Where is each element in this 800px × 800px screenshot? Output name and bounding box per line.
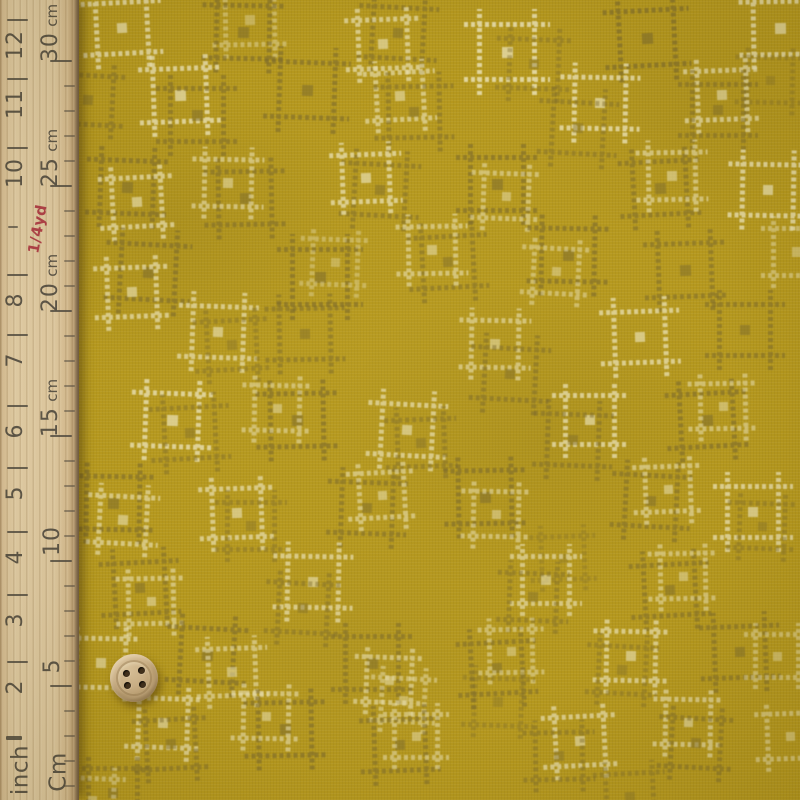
cm-minor-tick [64,410,75,412]
inch-number-6: 6 [5,424,27,439]
motif-stitch-line [768,290,773,370]
cm-number-20: 20 cm [40,254,62,312]
inch-tick-3 [7,594,28,596]
cm-tick-10 [50,560,72,562]
motif-center-square [679,264,690,275]
motif-center-square [528,592,538,602]
cm-minor-tick [64,760,75,762]
fabric-motif-dark [703,288,787,372]
motif-center-square [237,26,248,37]
inch-tick-8 [7,274,28,276]
motif-center-square [641,32,653,44]
motif-center-square [554,751,564,761]
cm-minor-tick [64,160,75,162]
fabric-motif-cream [91,251,174,334]
inch-tick-11 [7,78,28,80]
inch-number-10: 10 [5,158,27,188]
motif-stitch-line [221,74,226,156]
inch-tick-4 [7,531,28,533]
inch-tick-12 [7,19,28,21]
motif-center-square [551,266,560,275]
motif-stitch-line [761,226,800,231]
quarter-yard-tick [8,226,18,228]
motif-center-square [378,39,388,49]
fabric-motif-dark [534,84,622,172]
motif-center-square [785,731,794,740]
cm-minor-tick [64,85,75,87]
cm-number-30: 30 cm [40,4,62,62]
motif-center-square [506,646,515,655]
cm-minor-tick [64,785,75,787]
cm-minor-tick [64,360,75,362]
motif-center-square [272,403,281,412]
cm-minor-tick [64,210,75,212]
motif-center-square [227,667,237,677]
motif-stitch-line [756,755,800,762]
motif-center-square [427,245,437,255]
motif-center-square [246,521,256,531]
fabric-motif-cream [645,538,720,613]
button-hole [123,670,130,677]
button-hole [139,681,146,688]
motif-stitch-line [649,760,658,800]
fabric-motif-cream [393,211,470,288]
inch-tick-6 [7,405,28,407]
motif-center-square [765,75,774,84]
fabric-motif-cream [189,144,266,221]
motif-center-square [361,173,371,183]
motif-center-square [568,435,578,445]
motif-stitch-line [92,0,101,69]
motif-center-square [146,596,155,605]
fabric-motif-cream [517,232,595,310]
motif-center-square [298,603,309,614]
motif-center-square [792,247,800,257]
cm-number-10: 10 [42,526,64,556]
motif-stitch-line [741,70,746,150]
motif-center-square [493,697,503,707]
motif-stitch-line [343,622,348,704]
fabric-motif-dark [260,43,353,136]
cm-minor-tick [64,710,75,712]
inch-number-12: 12 [5,30,27,60]
motif-center-square [625,792,636,800]
cm-minor-tick [64,260,75,262]
motif-stitch-line [754,710,800,717]
inch-number-4: 4 [5,550,27,565]
fabric-motif-cream [759,214,800,290]
motif-center-square [416,438,426,448]
fabric-motif-cream [327,139,406,218]
button-hole [124,682,131,689]
motif-stitch-line [602,762,611,800]
cm-number-25: 25 cm [40,129,62,187]
button-rim [116,660,152,696]
inch-number-3: 3 [5,613,27,628]
motif-center-square [166,739,177,750]
motif-center-square [678,571,687,580]
cm-minor-tick [64,235,75,237]
cm-minor-tick [64,510,75,512]
fabric-motif-cream [458,476,533,551]
motif-center-square [763,185,773,195]
motif-center-square [691,738,702,749]
motif-center-square [223,178,233,188]
wooden-ruler: 1211101/4yd8765432inch30 cm25 cm20 cm15 … [0,0,79,800]
inch-number-2: 2 [5,680,27,695]
motif-stitch-line [771,216,776,288]
motif-center-square [718,401,727,410]
motif-center-square [412,732,421,741]
motif-center-square [83,95,94,106]
motif-center-square [261,711,270,720]
fabric-motif-dark [146,389,234,477]
motif-center-square [377,490,386,499]
cm-minor-tick [64,535,75,537]
motif-center-square [757,521,766,530]
motif-center-square [87,795,96,800]
fabric-motif-dark [520,717,597,794]
fabric-motif-dark [530,397,617,484]
cm-minor-tick [64,610,75,612]
fabric-motif-cream [381,701,451,771]
cm-minor-tick [64,735,75,737]
motif-center-square [491,509,500,518]
motif-center-square [127,287,137,297]
motif-center-square [330,257,339,266]
fabric-motif-cream [343,456,421,534]
motif-center-square [132,197,143,208]
motif-stitch-line [225,490,230,562]
fabric-motif-dark [582,630,662,710]
cm-minor-tick [64,110,75,112]
fabric-motif-cream [633,137,710,214]
motif-center-square [713,105,723,115]
motif-stitch-line [392,703,397,769]
motif-center-square [740,325,750,335]
inch-number-8: 8 [5,293,27,308]
inch-number-11: 11 [5,89,27,119]
cm-minor-tick [64,460,75,462]
motif-center-square [773,652,782,661]
motif-stitch-line [435,703,440,769]
motif-center-square [300,329,310,339]
fabric-motif-cream [685,368,760,443]
motif-stitch-line [796,623,800,689]
fabric-motif-cream [742,621,800,691]
motif-center-square [501,191,510,200]
wooden-button [110,654,158,702]
cm-minor-tick [64,135,75,137]
cm-minor-tick [64,485,75,487]
cm-minor-tick [64,285,75,287]
fabric-motif-dark [724,488,800,565]
motif-stitch-line [168,74,173,156]
cm-minor-tick [64,585,75,587]
motif-stitch-line [728,161,800,167]
motif-center-square [635,332,645,342]
quarter-yard-label: 1/4yd [26,203,49,254]
fabric-motif-cream [752,698,800,775]
motif-center-square [667,171,677,181]
motif-stitch-line [739,0,800,5]
inch-tick-10 [7,147,28,149]
fabric-motif-cream [228,678,303,753]
motif-center-square [227,340,238,351]
inch-tick-7 [7,334,28,336]
cm-minor-tick [64,635,75,637]
motif-center-square [663,484,672,493]
fabric-motif-cream [597,294,684,381]
motif-center-square [774,22,785,33]
inch-tick-5 [7,467,28,469]
motif-center-square [96,658,106,668]
motif-center-square [185,428,196,439]
motif-center-square [617,665,628,676]
motif-stitch-line [110,768,117,800]
cm-minor-tick [64,385,75,387]
inch-tick-2 [7,661,28,663]
fabric-product-photo: 1211101/4yd8765432inch30 cm25 cm20 cm15 … [0,0,800,800]
motif-stitch-line [761,273,800,278]
motif-center-square [529,59,539,69]
motif-stitch-line [135,755,140,800]
cm-number-5: 5 [42,659,64,674]
cm-tick-5 [50,685,72,687]
motif-center-square [573,123,584,134]
motif-center-square [118,515,129,526]
fabric-motif-cream [239,370,314,445]
cm-minor-tick [64,660,75,662]
motif-center-square [409,107,419,117]
cm-number-15: 15 cm [40,379,62,437]
motif-center-square [505,369,516,380]
inch-unit-label: inch [10,745,33,795]
cm-minor-tick [64,335,75,337]
inch-number-7: 7 [5,353,27,368]
inch-number-5: 5 [5,486,27,501]
fabric-motif-dark [262,291,347,376]
motif-center-square [117,23,128,34]
motif-center-square [192,110,203,121]
motif-center-square [301,84,312,95]
fabric-motif-dark [590,757,670,800]
fabric-motif-cream [630,451,707,528]
motif-stitch-line [753,623,758,689]
motif-stitch-line [477,9,482,95]
button-hole [138,667,145,674]
fabric-motif-cream [297,224,374,301]
one-inch-tick [6,736,22,740]
motif-stitch-line [717,290,722,370]
